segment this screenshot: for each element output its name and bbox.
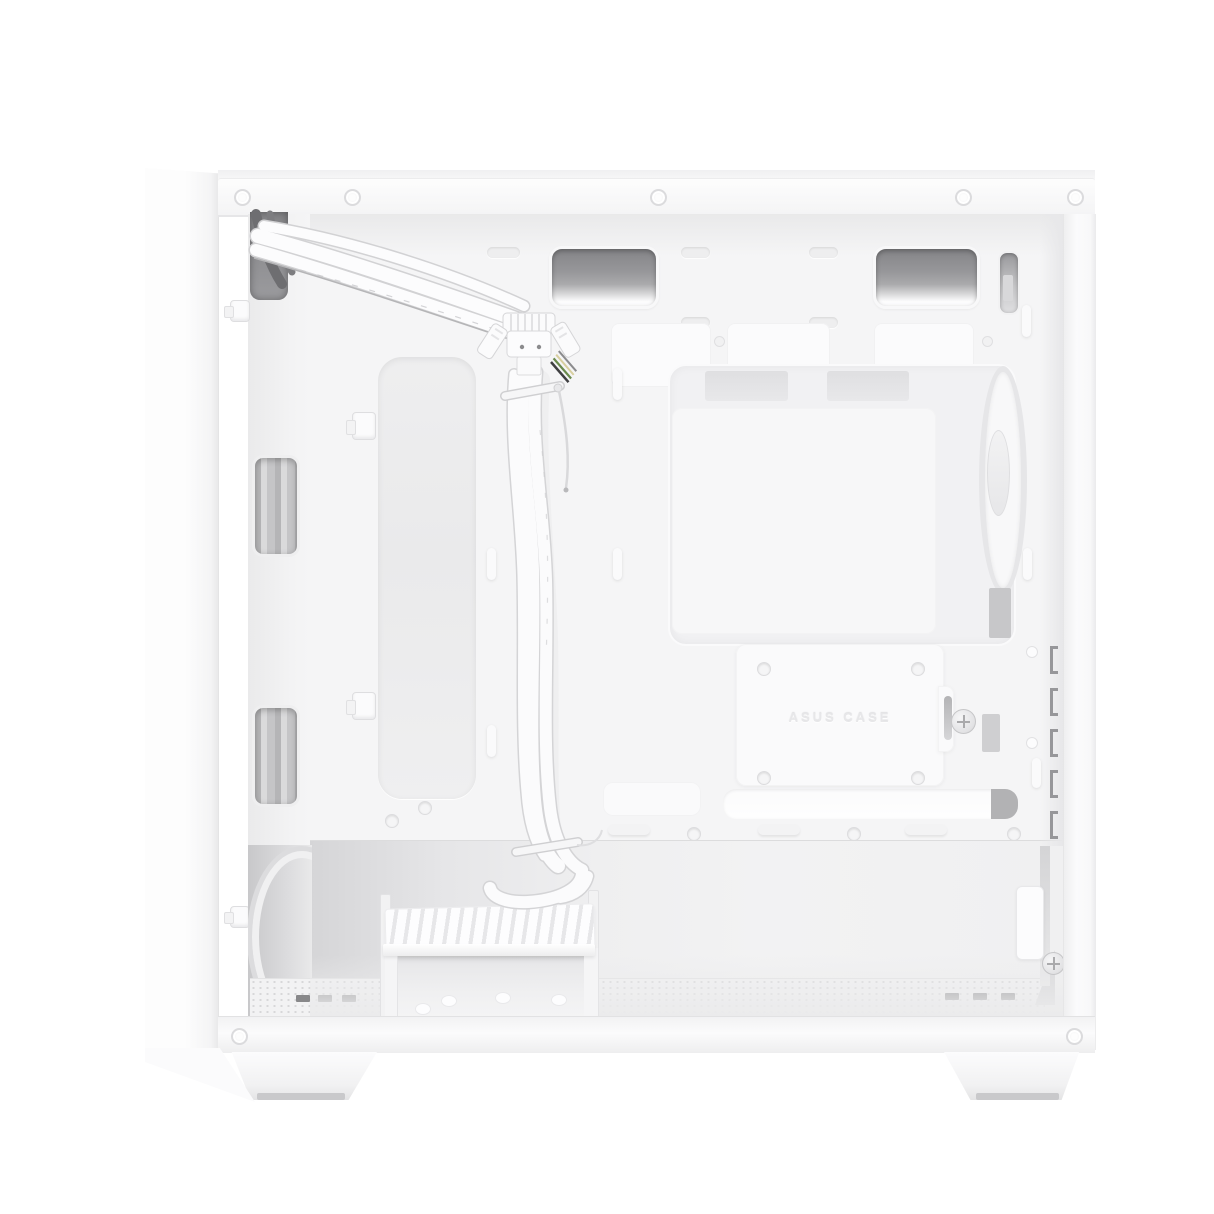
far-side-panel xyxy=(672,408,936,634)
rear-panel-band xyxy=(1063,214,1096,1050)
bracket-screw xyxy=(911,662,925,676)
standoff xyxy=(714,336,725,347)
tray-screw xyxy=(687,827,701,841)
front-fan-cutout xyxy=(252,705,300,807)
floor-bump xyxy=(495,992,511,1004)
rear-fan-hub xyxy=(987,430,1010,516)
emboss-pill-vertical xyxy=(613,368,622,400)
expansion-slot-tab xyxy=(1050,648,1053,672)
cable-grommet xyxy=(250,212,288,300)
cable-clip xyxy=(352,692,376,720)
emboss-pill xyxy=(487,247,520,258)
rivet xyxy=(231,1028,248,1045)
rear-panel-gap xyxy=(982,714,1000,752)
rivet xyxy=(1067,189,1084,206)
thumbscrew xyxy=(951,709,976,734)
emboss-pill xyxy=(487,317,520,328)
emboss-pill-vertical xyxy=(487,725,496,757)
cable-clip xyxy=(230,300,250,322)
rivet xyxy=(650,189,667,206)
foot-pad xyxy=(257,1093,346,1100)
rear-panel-gap xyxy=(989,588,1011,638)
bracket-screw xyxy=(757,662,771,676)
standoff xyxy=(982,336,993,347)
cage-side-wall xyxy=(584,948,599,1020)
expansion-slot-tab xyxy=(1050,731,1053,755)
front-panel-band xyxy=(145,168,219,1060)
tray-screw xyxy=(847,827,861,841)
screw-hole xyxy=(1026,737,1038,749)
pc-case-photo: ASUS CASE xyxy=(0,0,1214,1214)
shroud-clip xyxy=(608,824,650,835)
latch-block xyxy=(1003,275,1013,301)
emboss-pill-vertical xyxy=(487,548,496,580)
thumbscrew xyxy=(1042,952,1065,975)
floor-bump xyxy=(441,995,457,1007)
front-fan-cutout xyxy=(252,455,300,557)
ssd-bracket-emboss: ASUS CASE xyxy=(756,706,924,730)
screw-hole xyxy=(1026,646,1038,658)
expansion-slot-tab xyxy=(1050,772,1053,796)
top-vent-cutout xyxy=(873,246,980,309)
shroud-recess xyxy=(603,782,701,816)
tray-screw xyxy=(385,814,399,828)
cable-routing-slot xyxy=(723,789,1018,819)
shroud-clip xyxy=(758,824,800,835)
emboss-pill xyxy=(809,247,838,258)
expansion-slot-tab xyxy=(1050,813,1053,837)
emboss-pill-vertical xyxy=(1023,548,1032,580)
long-routing-cutout xyxy=(378,357,476,799)
rivet xyxy=(234,189,251,206)
bottom-rail xyxy=(218,1016,1095,1053)
tray-screw xyxy=(418,801,432,815)
tray-screw xyxy=(1007,827,1021,841)
rear-vent-gap xyxy=(705,371,788,401)
case-foot xyxy=(944,1052,1091,1100)
psu-mount-slot xyxy=(296,995,310,1002)
bracket-screw xyxy=(911,771,925,785)
rear-vent-gap xyxy=(827,371,909,401)
cable-clip xyxy=(230,906,250,928)
cage-side-wall xyxy=(385,950,398,1020)
latch-slot xyxy=(998,251,1020,315)
drive-tray-lip xyxy=(383,944,595,956)
expansion-slot-tab xyxy=(1050,690,1053,714)
foot-pad xyxy=(976,1093,1058,1100)
floor-bump xyxy=(415,1003,431,1015)
bracket-screw xyxy=(757,771,771,785)
rivet xyxy=(344,189,361,206)
cable-clip xyxy=(352,412,376,440)
slot-grommet xyxy=(991,789,1018,819)
rivet xyxy=(955,189,972,206)
emboss-pill-vertical xyxy=(1022,305,1031,337)
floor-bump xyxy=(551,994,567,1006)
rivet xyxy=(1066,1028,1083,1045)
emboss-pill xyxy=(681,247,710,258)
emboss-pill-vertical xyxy=(613,548,622,580)
shroud-clip xyxy=(905,824,947,835)
psu-bracket xyxy=(1016,886,1044,960)
top-vent-cutout xyxy=(549,246,659,309)
